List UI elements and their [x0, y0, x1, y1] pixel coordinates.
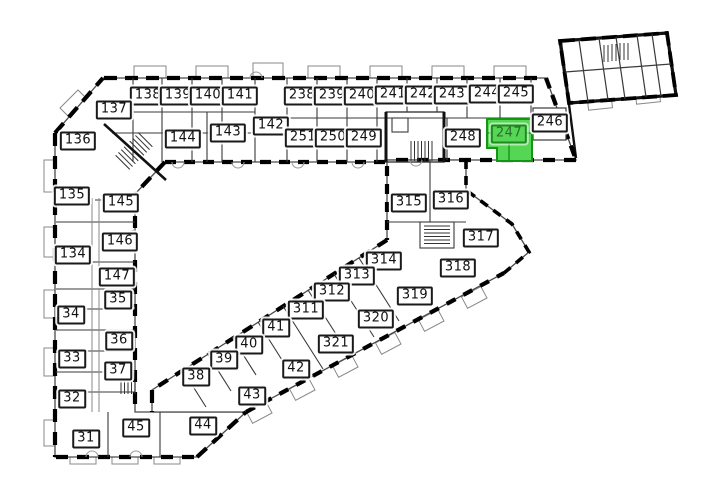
unit-label[interactable]: 42 [282, 360, 310, 379]
floorplan-canvas: 1381391401412382392402412422432442451371… [0, 0, 707, 500]
unit-label[interactable]: 145 [103, 194, 139, 213]
unit-label[interactable]: 316 [433, 191, 469, 210]
unit-label[interactable]: 319 [397, 287, 433, 306]
unit-label[interactable]: 142 [253, 117, 289, 136]
unit-label[interactable]: 37 [104, 362, 132, 381]
unit-label[interactable]: 318 [440, 259, 476, 278]
unit-label[interactable]: 39 [210, 351, 238, 370]
unit-label[interactable]: 317 [463, 229, 499, 248]
unit-label[interactable]: 44 [189, 417, 217, 436]
unit-label[interactable]: 147 [99, 268, 135, 287]
unit-label[interactable]: 135 [54, 187, 90, 206]
unit-label[interactable]: 249 [346, 129, 382, 148]
unit-label[interactable]: 315 [391, 194, 427, 213]
unit-label[interactable]: 35 [104, 291, 132, 310]
unit-label[interactable]: 34 [57, 306, 85, 325]
unit-label[interactable]: 320 [358, 310, 394, 329]
unit-label[interactable]: 32 [58, 390, 86, 409]
unit-label[interactable]: 246 [532, 114, 568, 133]
unit-label[interactable]: 141 [222, 87, 258, 106]
unit-label[interactable]: 143 [210, 124, 246, 143]
unit-labels-layer: 1381391401412382392402412422432442451371… [0, 0, 707, 500]
unit-label[interactable]: 321 [318, 335, 354, 354]
unit-label[interactable]: 137 [96, 101, 132, 120]
unit-label-highlighted[interactable]: 247 [491, 125, 527, 144]
unit-label[interactable]: 144 [165, 130, 201, 149]
unit-label[interactable]: 146 [102, 233, 138, 252]
unit-label[interactable]: 243 [434, 86, 470, 105]
unit-label[interactable]: 134 [55, 246, 91, 265]
unit-label[interactable]: 245 [498, 85, 534, 104]
unit-label[interactable]: 36 [105, 332, 133, 351]
unit-label[interactable]: 312 [314, 283, 350, 302]
unit-label[interactable]: 41 [262, 319, 290, 338]
unit-label[interactable]: 43 [238, 387, 266, 406]
unit-label[interactable]: 311 [288, 301, 324, 320]
unit-label[interactable]: 33 [58, 350, 86, 369]
unit-label[interactable]: 136 [60, 132, 96, 151]
unit-label[interactable]: 45 [122, 419, 150, 438]
unit-label[interactable]: 31 [72, 430, 100, 449]
unit-label[interactable]: 38 [182, 368, 210, 387]
unit-label[interactable]: 40 [235, 336, 263, 355]
unit-label[interactable]: 248 [445, 129, 481, 148]
unit-label[interactable]: 140 [190, 87, 226, 106]
